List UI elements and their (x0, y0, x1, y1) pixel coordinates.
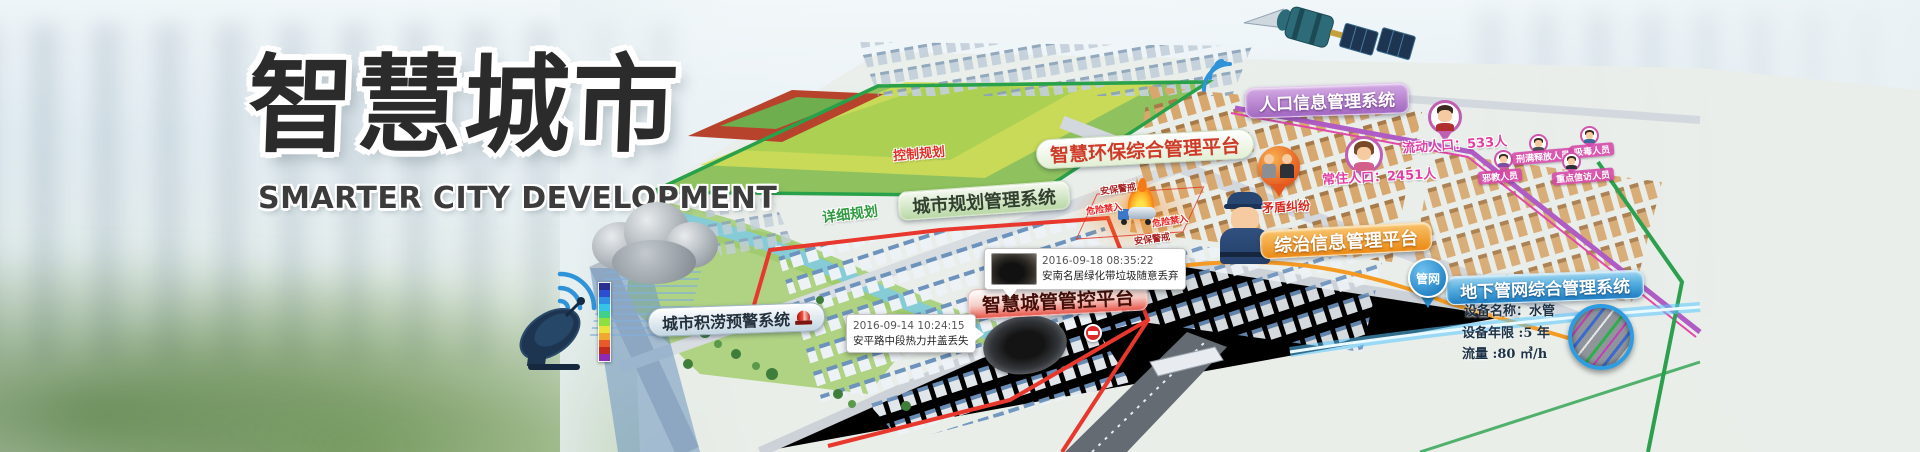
rain-legend (598, 282, 611, 362)
pipe-device-name: 设备名称：水管 (1464, 300, 1555, 319)
dispute-label: 矛盾纠纷 (1262, 197, 1311, 216)
incident-time-2: 2016-09-14 10:24:15 (853, 319, 969, 334)
incident-time-1: 2016-09-18 08:35:22 (1042, 254, 1179, 269)
label-flood-warning-system[interactable]: 城市积涝预警系统 (648, 302, 826, 337)
incident-tooltip-manhole: 2016-09-14 10:24:15 安平路中段热力井盖丢失 (846, 314, 976, 353)
incident-tooltip-garbage: 2016-09-18 08:35:22 安南名居绿化带垃圾随意丢弃 (984, 248, 1186, 290)
underground-pipes-magnifier (1568, 304, 1634, 370)
pipe-flow-rate: 流量 :80 ㎥/h (1462, 343, 1547, 362)
no-entry-sign-icon (1084, 324, 1102, 342)
page-title: 智慧城市 (246, 48, 682, 165)
smart-city-banner: 智慧城市 SMARTER CITY DEVELOPMENT (0, 0, 1920, 452)
incident-desc-2: 安平路中段热力井盖丢失 (853, 334, 969, 349)
garbage-photo (991, 253, 1037, 285)
rain-cloud-icon (586, 196, 726, 291)
incident-desc-1: 安南名居绿化带垃圾随意丢弃 (1042, 269, 1179, 284)
dispute-pin[interactable] (1258, 146, 1300, 198)
flood-warning-text: 城市积涝预警系统 (662, 306, 791, 334)
pipe-network-pin[interactable]: 管网 (1408, 258, 1448, 310)
alarm-light-icon (796, 310, 811, 325)
pipe-pin-label: 管网 (1416, 270, 1440, 287)
pipe-device-age: 设备年限 :5 年 (1462, 322, 1550, 341)
label-population-system[interactable]: 人口信息管理系统 (1245, 82, 1410, 119)
